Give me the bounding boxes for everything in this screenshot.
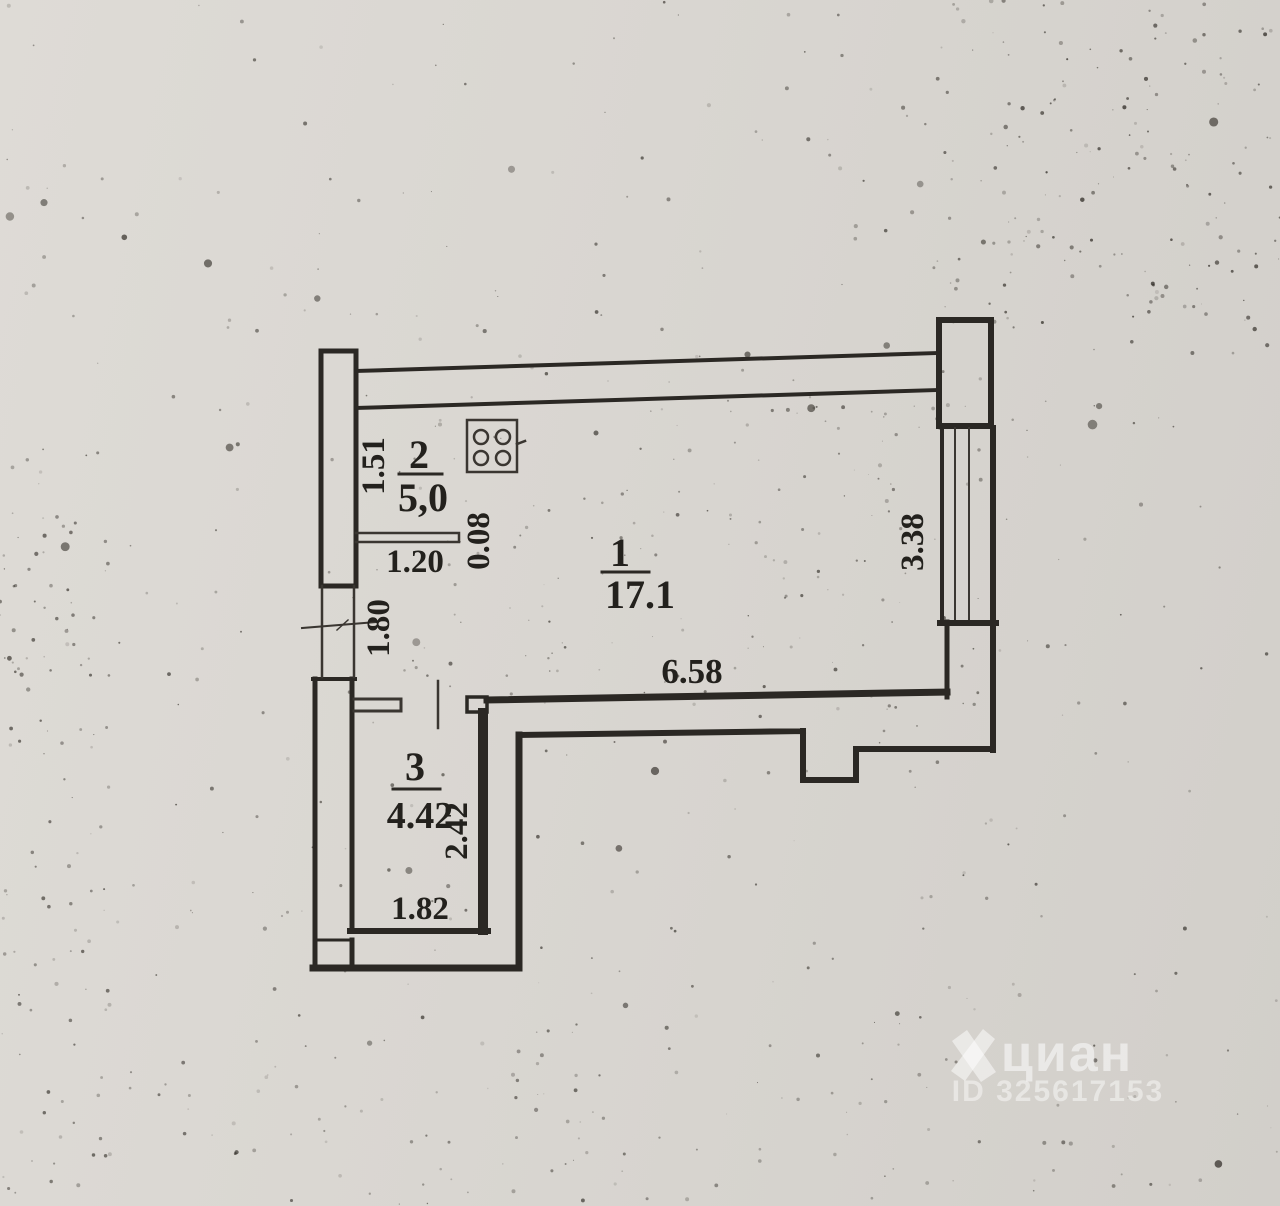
paper-speck: [12, 512, 14, 514]
paper-speck: [43, 753, 44, 754]
paper-speck: [730, 411, 732, 413]
paper-speck: [448, 1141, 451, 1144]
paper-speck: [47, 188, 48, 189]
paper-speck: [1200, 506, 1202, 508]
paper-speck: [884, 412, 887, 415]
paper-speck: [614, 1182, 617, 1185]
paper-speck: [550, 1169, 553, 1172]
paper-speck: [541, 605, 543, 607]
paper-speck: [101, 177, 104, 180]
paper-speck: [70, 950, 72, 952]
paper-speck: [668, 1047, 671, 1050]
paper-speck: [1266, 916, 1268, 918]
paper-speck: [320, 801, 323, 804]
paper-speck: [1144, 271, 1145, 272]
paper-speck: [619, 970, 621, 972]
dim-kitchen-depth: 1.51: [356, 437, 392, 495]
paper-speck: [47, 1090, 51, 1094]
paper-speck: [937, 260, 939, 262]
paper-speck: [763, 685, 766, 688]
paper-speck: [966, 998, 967, 999]
paper-speck: [369, 1193, 371, 1195]
paper-speck: [1062, 84, 1066, 88]
paper-speck: [537, 1094, 538, 1095]
paper-speck: [654, 553, 657, 556]
paper-speck: [744, 351, 750, 357]
paper-speck: [978, 598, 979, 599]
paper-speck: [1208, 265, 1210, 267]
paper-speck: [3, 952, 6, 955]
paper-speck: [934, 539, 935, 540]
paper-speck: [497, 296, 498, 297]
room-labels: 1 17.1 2 5,0 3 4.42: [387, 432, 675, 837]
paper-speck: [99, 825, 102, 828]
paper-speck: [856, 559, 858, 561]
paper-speck: [1174, 972, 1177, 975]
paper-speck: [916, 725, 918, 727]
paper-speck: [1253, 327, 1257, 331]
paper-speck: [680, 618, 681, 619]
paper-speck: [227, 326, 230, 329]
paper-speck: [778, 488, 781, 491]
paper-speck: [1193, 38, 1198, 43]
outer-boundary-notch: [519, 731, 993, 780]
paper-speck: [175, 925, 179, 929]
paper-speck: [49, 669, 52, 672]
paper-speck: [357, 199, 360, 202]
paper-speck: [961, 665, 964, 668]
paper-speck: [0, 614, 1, 616]
stove-icon: [467, 420, 525, 472]
paper-speck: [330, 458, 333, 461]
paper-speck: [1020, 106, 1024, 110]
paper-speck: [232, 1121, 236, 1125]
paper-speck: [345, 848, 347, 850]
paper-speck: [72, 797, 73, 798]
paper-speck: [511, 1073, 515, 1077]
paper-speck: [172, 395, 176, 399]
paper-speck: [190, 910, 192, 912]
paper-speck: [838, 166, 842, 170]
paper-speck: [135, 212, 139, 216]
paper-speck: [950, 282, 952, 284]
paper-speck: [945, 1058, 948, 1061]
paper-speck: [897, 1043, 899, 1045]
pillar-top-left: [321, 351, 356, 586]
paper-speck: [384, 1040, 386, 1042]
paper-speck: [574, 1088, 578, 1092]
paper-speck: [692, 703, 695, 706]
paper-speck: [12, 662, 14, 664]
paper-speck: [1052, 1169, 1055, 1172]
paper-speck: [434, 949, 435, 950]
paper-speck: [1158, 417, 1159, 418]
paper-speck: [885, 499, 889, 503]
paper-speck: [572, 62, 574, 64]
paper-speck: [831, 1092, 834, 1095]
paper-speck: [1080, 197, 1085, 202]
paper-speck: [585, 1151, 588, 1154]
watermark: циан ID 325617153: [951, 1025, 1164, 1108]
paper-speck: [1164, 285, 1168, 289]
paper-speck: [73, 1122, 75, 1124]
paper-speck: [931, 407, 935, 411]
paper-speck: [1153, 24, 1157, 28]
paper-speck: [26, 186, 30, 190]
paper-speck: [421, 1016, 425, 1020]
paper-speck: [1022, 141, 1024, 143]
paper-speck: [390, 783, 394, 787]
paper-speck: [1119, 49, 1122, 52]
paper-speck: [1188, 790, 1191, 793]
paper-speck: [334, 1057, 336, 1059]
paper-speck: [906, 115, 908, 117]
paper-speck: [759, 1148, 762, 1151]
paper-speck: [758, 459, 760, 461]
paper-speck: [1076, 152, 1077, 153]
paper-speck: [104, 1154, 108, 1158]
paper-speck: [407, 984, 408, 985]
paper-speck: [74, 521, 77, 524]
paper-speck: [290, 1133, 292, 1135]
paper-speck: [1133, 422, 1135, 424]
paper-speck: [607, 380, 608, 381]
paper-speck: [832, 662, 833, 663]
paper-speck: [676, 513, 680, 517]
paper-speck: [34, 963, 37, 966]
paper-speck: [71, 613, 75, 617]
paper-speck: [1010, 253, 1013, 256]
paper-speck: [926, 1087, 927, 1088]
paper-speck: [412, 638, 420, 646]
paper-speck: [790, 645, 793, 648]
paper-speck: [827, 589, 828, 590]
paper-speck: [601, 502, 604, 505]
paper-speck: [973, 703, 976, 706]
paper-speck: [695, 1014, 698, 1017]
paper-speck: [9, 743, 12, 746]
paper-speck: [471, 396, 473, 398]
paper-speck: [536, 1062, 539, 1065]
paper-speck: [210, 787, 214, 791]
paper-speck: [895, 1011, 900, 1016]
paper-speck: [1171, 165, 1174, 168]
paper-speck: [1011, 418, 1014, 421]
paper-speck: [545, 372, 548, 375]
paper-speck: [661, 408, 663, 410]
paper-speck: [626, 196, 628, 198]
paper-speck: [999, 649, 1002, 652]
paper-speck: [977, 448, 980, 451]
paper-speck: [644, 692, 646, 694]
paper-speck: [328, 571, 331, 574]
paper-speck: [1170, 153, 1172, 155]
paper-speck: [85, 454, 87, 456]
paper-speck: [862, 180, 864, 182]
paper-speck: [1132, 316, 1134, 318]
paper-speck: [1016, 827, 1018, 829]
paper-speck: [922, 927, 924, 929]
paper-speck: [1224, 202, 1226, 204]
paper-speck: [426, 674, 429, 677]
paper-speck: [1006, 519, 1008, 521]
paper-speck: [878, 478, 880, 480]
paper-speck: [748, 648, 749, 649]
paper-speck: [33, 45, 35, 47]
paper-speck: [985, 822, 987, 824]
paper-speck: [794, 840, 795, 841]
paper-speck: [670, 927, 673, 930]
paper-speck: [962, 874, 964, 876]
paper-speck: [1062, 715, 1063, 716]
paper-speck: [104, 540, 107, 543]
paper-speck: [1002, 191, 1006, 195]
paper-speck: [454, 458, 456, 460]
paper-speck: [895, 433, 898, 436]
paper-speck: [1122, 105, 1126, 109]
paper-speck: [1135, 152, 1139, 156]
paper-speck: [688, 448, 692, 452]
paper-speck: [899, 1023, 900, 1024]
paper-speck: [192, 881, 196, 885]
paper-speck: [286, 757, 290, 761]
paper-speck: [707, 103, 711, 107]
paper-speck: [1098, 183, 1099, 184]
paper-speck: [55, 515, 59, 519]
paper-speck: [1097, 67, 1099, 69]
paper-speck: [890, 483, 892, 485]
paper-speck: [985, 897, 988, 900]
paper-speck: [623, 1003, 629, 1009]
top-wall-outer: [356, 353, 938, 371]
paper-speck: [773, 559, 775, 561]
room-2-number: 2: [409, 432, 429, 477]
paper-speck: [1007, 102, 1010, 105]
paper-speck: [783, 577, 785, 579]
paper-speck: [685, 1197, 689, 1201]
paper-speck: [883, 342, 890, 349]
paper-speck: [946, 403, 950, 407]
paper-speck: [53, 1163, 55, 1165]
paper-speck: [616, 845, 623, 852]
paper-speck: [728, 544, 729, 545]
paper-speck: [476, 324, 479, 327]
paper-speck: [270, 266, 274, 270]
paper-speck: [832, 958, 834, 960]
paper-speck: [108, 674, 111, 677]
paper-speck: [1004, 311, 1007, 314]
dim-entry-opening: 1.80: [361, 599, 397, 657]
paper-speck: [1265, 343, 1269, 347]
paper-speck: [67, 864, 71, 868]
paper-speck: [454, 614, 456, 616]
kitchen-partition: [356, 533, 459, 542]
paper-speck: [246, 402, 250, 406]
paper-speck: [993, 166, 997, 170]
paper-speck: [181, 1061, 185, 1065]
paper-speck: [1013, 326, 1015, 328]
paper-speck: [1263, 32, 1267, 36]
paper-speck: [917, 181, 924, 188]
paper-speck: [510, 692, 513, 695]
paper-speck: [179, 177, 182, 180]
paper-speck: [1219, 57, 1221, 59]
paper-speck: [611, 642, 613, 644]
paper-speck: [1002, 0, 1006, 3]
paper-speck: [47, 905, 51, 909]
paper-speck: [314, 295, 320, 301]
paper-speck: [1140, 145, 1143, 148]
paper-speck: [558, 578, 559, 579]
paper-speck: [1270, 1127, 1271, 1128]
paper-speck: [591, 992, 593, 994]
paper-speck: [525, 655, 526, 656]
paper-speck: [380, 1098, 383, 1101]
paper-speck: [516, 1079, 519, 1082]
paper-speck: [465, 500, 467, 502]
paper-speck: [726, 1113, 727, 1114]
paper-speck: [547, 657, 549, 659]
pillar-top-right: [939, 320, 991, 426]
paper-speck: [551, 171, 554, 174]
paper-speck: [1061, 1140, 1065, 1144]
paper-speck: [626, 490, 627, 491]
paper-speck: [1090, 151, 1091, 152]
paper-speck: [1003, 41, 1005, 43]
paper-speck: [674, 930, 677, 933]
paper-speck: [69, 902, 72, 905]
paper-speck: [884, 1100, 887, 1103]
paper-speck: [1186, 184, 1188, 186]
paper-speck: [439, 419, 442, 422]
paper-speck: [973, 1008, 975, 1010]
paper-speck: [435, 426, 436, 427]
paper-speck: [11, 466, 15, 470]
paper-speck: [387, 868, 390, 871]
paper-speck: [696, 1149, 698, 1151]
paper-speck: [1155, 990, 1158, 993]
paper-speck: [449, 917, 452, 920]
paper-speck: [883, 730, 886, 733]
paper-speck: [1232, 352, 1235, 355]
paper-speck: [989, 818, 992, 821]
paper-speck: [105, 726, 108, 729]
paper-speck: [806, 137, 810, 141]
paper-speck: [918, 427, 919, 428]
paper-speck: [1008, 222, 1009, 223]
paper-speck: [399, 471, 401, 473]
paper-speck: [1231, 270, 1234, 273]
paper-speck: [825, 420, 827, 422]
paper-speck: [583, 497, 585, 499]
paper-speck: [80, 664, 82, 666]
paper-speck: [436, 1091, 438, 1093]
paper-speck: [807, 966, 810, 969]
paper-speck: [1227, 1049, 1229, 1051]
paper-speck: [1237, 1113, 1238, 1114]
paper-speck: [422, 1183, 424, 1185]
paper-speck: [372, 722, 374, 724]
paper-speck: [801, 528, 804, 531]
paper-speck: [1155, 93, 1158, 96]
dim-partition-length: 1.20: [386, 544, 444, 580]
paper-speck: [604, 112, 605, 113]
paper-speck: [1192, 305, 1195, 308]
paper-speck: [945, 306, 946, 307]
paper-speck: [262, 711, 265, 714]
paper-speck: [34, 552, 38, 556]
paper-speck: [1053, 99, 1056, 102]
paper-speck: [1050, 102, 1052, 104]
paper-speck: [1215, 260, 1219, 264]
paper-speck: [816, 1053, 820, 1057]
paper-speck: [339, 884, 342, 887]
paper-speck: [651, 767, 659, 775]
paper-speck: [678, 491, 680, 493]
paper-speck: [786, 408, 790, 412]
paper-speck: [376, 313, 379, 316]
paper-speck: [222, 832, 223, 833]
dim-room3-width: 1.82: [391, 891, 449, 927]
paper-speck: [2, 1033, 3, 1034]
paper-speck: [1129, 134, 1131, 136]
room-1-number: 1: [610, 530, 630, 575]
paper-speck: [1220, 73, 1223, 76]
paper-speck: [914, 786, 916, 788]
paper-speck: [13, 951, 15, 953]
paper-speck: [483, 329, 487, 333]
paper-speck: [35, 866, 37, 868]
paper-speck: [47, 730, 48, 731]
paper-speck: [591, 957, 593, 959]
paper-speck: [18, 994, 20, 996]
paper-speck: [1276, 1151, 1278, 1153]
room-2-area: 5,0: [398, 475, 448, 520]
paper-speck: [219, 409, 221, 411]
paper-speck: [1006, 317, 1009, 320]
paper-speck: [281, 915, 283, 917]
paper-speck: [741, 369, 744, 372]
paper-speck: [771, 409, 774, 412]
paper-speck: [106, 562, 110, 566]
paper-speck: [344, 1105, 346, 1107]
paper-speck: [878, 463, 882, 467]
paper-speck: [763, 646, 764, 647]
paper-speck: [979, 478, 983, 482]
paper-speck: [1139, 503, 1143, 507]
paper-speck: [60, 741, 64, 745]
paper-speck: [844, 495, 845, 496]
paper-speck: [13, 585, 16, 588]
paper-speck: [767, 771, 771, 775]
paper-speck: [1165, 32, 1167, 34]
paper-speck: [1066, 58, 1068, 60]
paper-speck: [602, 274, 605, 277]
paper-speck: [217, 191, 220, 194]
paper-speck: [579, 1121, 581, 1123]
paper-speck: [1166, 1054, 1168, 1056]
paper-speck: [1077, 701, 1080, 704]
paper-speck: [827, 139, 828, 140]
paper-speck: [6, 212, 14, 220]
paper-speck: [366, 395, 368, 397]
paper-speck: [544, 584, 545, 585]
paper-speck: [1209, 117, 1218, 126]
paper-speck: [27, 568, 30, 571]
paper-speck: [502, 1163, 503, 1164]
paper-speck: [1185, 159, 1187, 161]
paper-speck: [1044, 31, 1046, 33]
